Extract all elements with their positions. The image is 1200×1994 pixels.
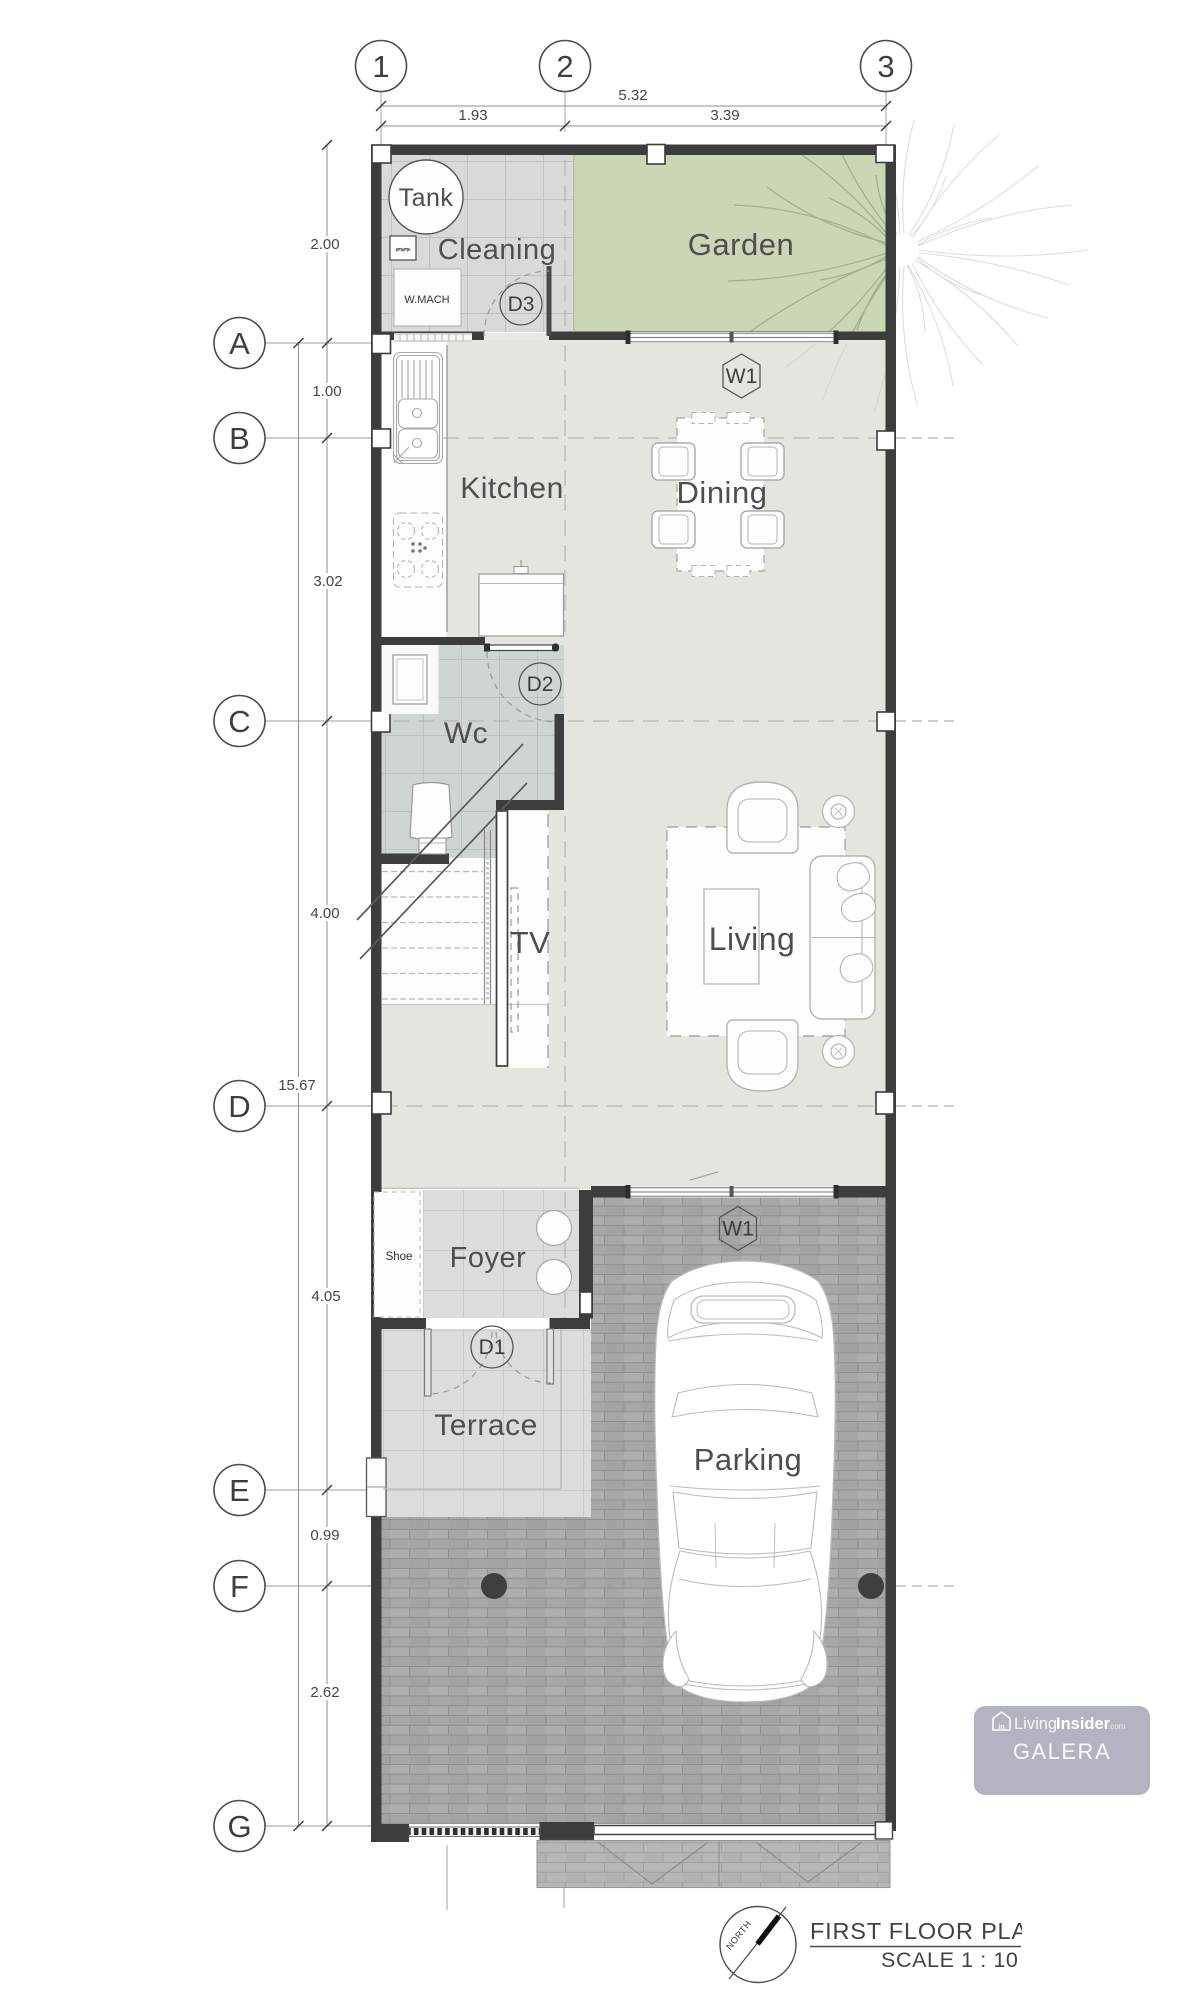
svg-text:A: A (229, 326, 250, 361)
svg-text:Cleaning: Cleaning (438, 234, 556, 266)
svg-text:2.62: 2.62 (310, 1684, 339, 1701)
svg-text:W1: W1 (726, 365, 758, 388)
svg-text:0.99: 0.99 (310, 1527, 339, 1544)
svg-text:D3: D3 (508, 293, 535, 316)
svg-text:1.00: 1.00 (312, 383, 341, 400)
svg-text:in: in (998, 1722, 1005, 1731)
svg-text:FIRST FLOOR PLAN: FIRST FLOOR PLAN (810, 1918, 1046, 1944)
svg-text:Shoe: Shoe (386, 1251, 413, 1263)
svg-text:Insider: Insider (1056, 1715, 1111, 1733)
svg-text:D1: D1 (479, 1336, 506, 1359)
svg-text:Terrace: Terrace (434, 1409, 538, 1442)
svg-text:5.32: 5.32 (618, 87, 647, 104)
svg-text:3.39: 3.39 (710, 107, 739, 124)
svg-text:C: C (228, 704, 250, 739)
svg-text:.com: .com (1108, 1722, 1126, 1731)
svg-text:4.00: 4.00 (310, 905, 339, 922)
svg-text:SCALE 1 : 10: SCALE 1 : 10 (881, 1948, 1018, 1972)
svg-text:F: F (230, 1569, 249, 1604)
svg-text:3.02: 3.02 (313, 573, 342, 590)
svg-text:2: 2 (556, 49, 573, 84)
svg-text:GALERA: GALERA (1013, 1739, 1111, 1764)
svg-text:pump: pump (396, 247, 410, 253)
svg-text:Tank: Tank (399, 184, 454, 212)
svg-text:D: D (228, 1089, 250, 1124)
svg-text:Garden: Garden (688, 227, 794, 262)
svg-text:D2: D2 (527, 673, 554, 696)
svg-text:Wc: Wc (444, 717, 488, 750)
svg-text:G: G (227, 1809, 251, 1844)
svg-text:W.MACH: W.MACH (404, 294, 449, 306)
svg-text:B: B (229, 421, 250, 456)
svg-text:Foyer: Foyer (450, 1242, 527, 1274)
svg-text:1: 1 (372, 49, 389, 84)
svg-text:W1: W1 (722, 1218, 754, 1241)
svg-text:TV: TV (510, 925, 551, 960)
svg-text:3: 3 (877, 49, 894, 84)
svg-text:2.00: 2.00 (310, 236, 339, 253)
svg-text:Living: Living (1014, 1715, 1057, 1733)
svg-text:1.93: 1.93 (458, 107, 487, 124)
svg-text:E: E (229, 1473, 250, 1508)
svg-text:Kitchen: Kitchen (460, 472, 564, 505)
svg-text:4.05: 4.05 (311, 1288, 340, 1305)
svg-text:Dining: Dining (677, 475, 768, 510)
svg-text:Parking: Parking (694, 1442, 803, 1477)
svg-text:Living: Living (709, 921, 796, 957)
svg-text:15.67: 15.67 (278, 1077, 316, 1094)
